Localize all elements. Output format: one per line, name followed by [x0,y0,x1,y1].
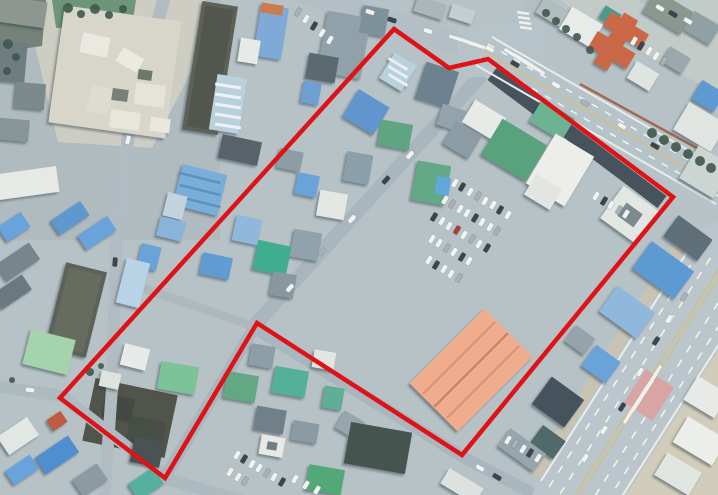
aerial-photo-canvas [0,0,718,495]
map-viewport [0,0,718,495]
